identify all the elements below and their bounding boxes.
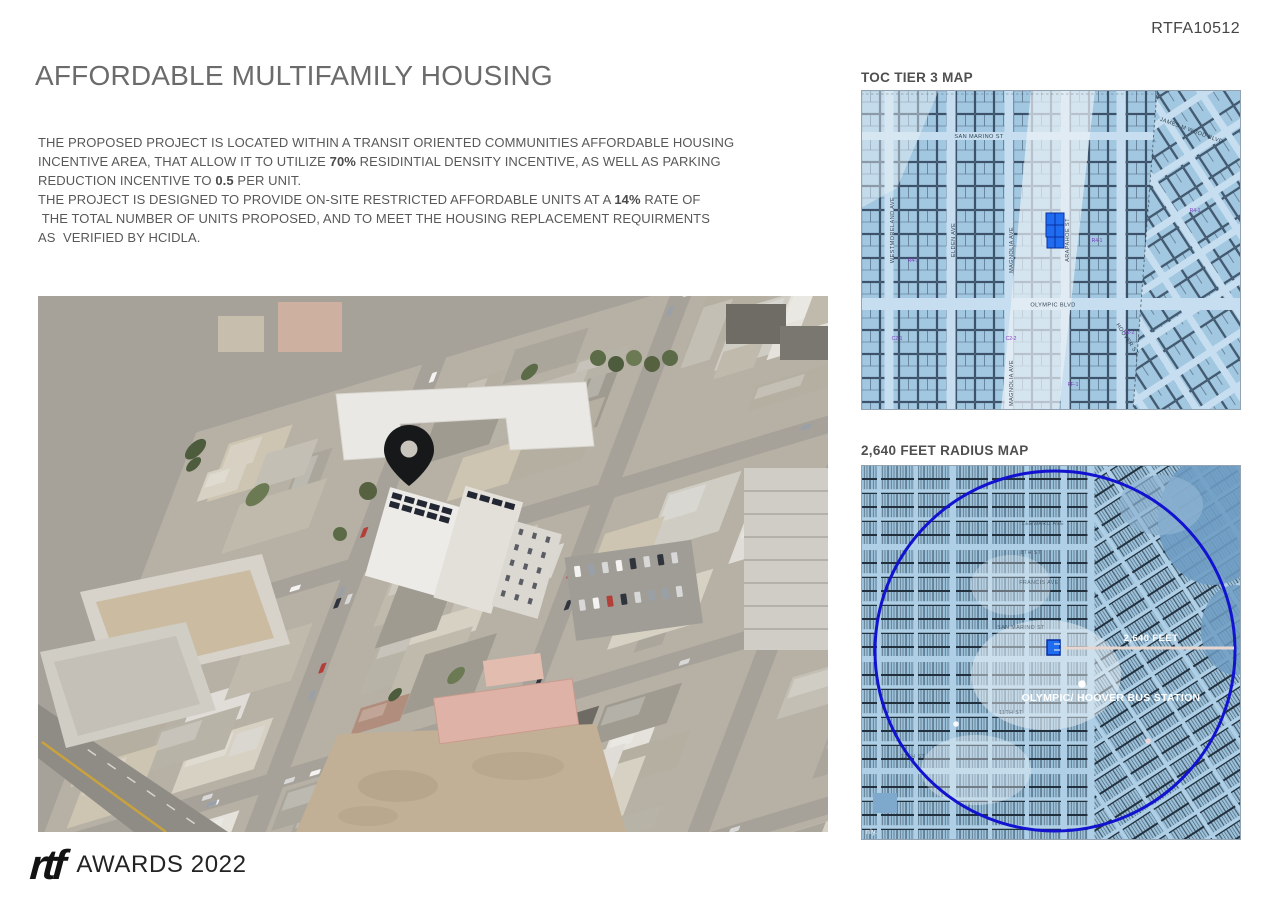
radius-map: LEEWARD AVE 8TH ST FRANCIS AVE SAN MARIN… (861, 465, 1241, 840)
street-label-magnolia: MAGNOLIA AVE (1009, 227, 1015, 273)
zone-label: C2-2 (1006, 336, 1017, 342)
street-label-francis: FRANCIS AVE (1019, 580, 1058, 586)
toc-map-graphic (861, 90, 1241, 410)
street-label-leeward: LEEWARD AVE (1022, 521, 1064, 527)
description-text: INCENTIVE AREA, THAT ALLOW IT TO UTILIZE (38, 154, 330, 169)
description-text: THE PROPOSED PROJECT IS LOCATED WITHIN A… (38, 135, 734, 150)
description-text: REDUCTION INCENTIVE TO (38, 173, 215, 188)
street-label-westmoreland: WESTMORELAND AVE (890, 197, 896, 263)
radius-distance-label: 2,640 FEET (1124, 633, 1179, 644)
street-label-11th: 11TH ST (999, 710, 1023, 716)
description-highlight: 14% (614, 192, 640, 207)
zone-label: R4-1 (1092, 238, 1103, 244)
zone-label: C2-2 (1124, 330, 1135, 336)
zone-label: PF-1 (1068, 382, 1079, 388)
radius-map-heading: 2,640 FEET RADIUS MAP (861, 443, 1029, 458)
street-label-san-marino: SAN MARINO ST (954, 134, 1004, 140)
map-watermark: nly. (866, 827, 877, 836)
awards-label: AWARDS 2022 (76, 851, 246, 879)
description-text: THE TOTAL NUMBER OF UNITS PROPOSED, AND … (38, 211, 710, 226)
description-highlight: 70% (330, 154, 356, 169)
description-highlight: 0.5 (215, 173, 233, 188)
toc-tier3-map: SAN MARINO ST OLYMPIC BLVD WESTMORELAND … (861, 90, 1241, 410)
zone-label: R4-1 (1190, 208, 1201, 214)
street-label-12th: 12TH ST (901, 754, 926, 760)
zone-label: R4-1 (908, 258, 919, 264)
street-label-magnolia-south: MAGNOLIA AVE (1009, 360, 1015, 406)
board-code: RTFA10512 (1151, 20, 1240, 38)
project-description: THE PROPOSED PROJECT IS LOCATED WITHIN A… (38, 133, 748, 247)
aerial-site-photo (38, 296, 828, 832)
zone-label: C2-1 (892, 336, 903, 342)
bus-station-label: OLYMPIC/ HOOVER BUS STATION (1022, 692, 1201, 704)
description-text: AS VERIFIED BY HCIDLA. (38, 230, 200, 245)
page-title: AFFORDABLE MULTIFAMILY HOUSING (35, 60, 553, 92)
street-label-arapahoe: ARAPAHOE ST (1065, 218, 1071, 262)
aerial-city-graphic (38, 296, 828, 832)
description-text: RATE OF (641, 192, 701, 207)
street-label-elden: ELDEN AVE (951, 223, 957, 257)
street-label-olympic: OLYMPIC BLVD (1030, 303, 1075, 309)
toc-map-heading: TOC TIER 3 MAP (861, 70, 973, 85)
street-label-san-marino: SAN MARINO ST (997, 625, 1045, 631)
street-label-8th: 8TH ST (1021, 550, 1042, 556)
description-text: THE PROJECT IS DESIGNED TO PROVIDE ON-SI… (38, 192, 614, 207)
rtf-logo-icon: rtf (29, 844, 68, 886)
description-text: PER UNIT. (234, 173, 301, 188)
rtf-awards-logo: rtf AWARDS 2022 (30, 844, 247, 886)
description-text: RESIDINTIAL DENSITY INCENTIVE, AS WELL A… (356, 154, 721, 169)
